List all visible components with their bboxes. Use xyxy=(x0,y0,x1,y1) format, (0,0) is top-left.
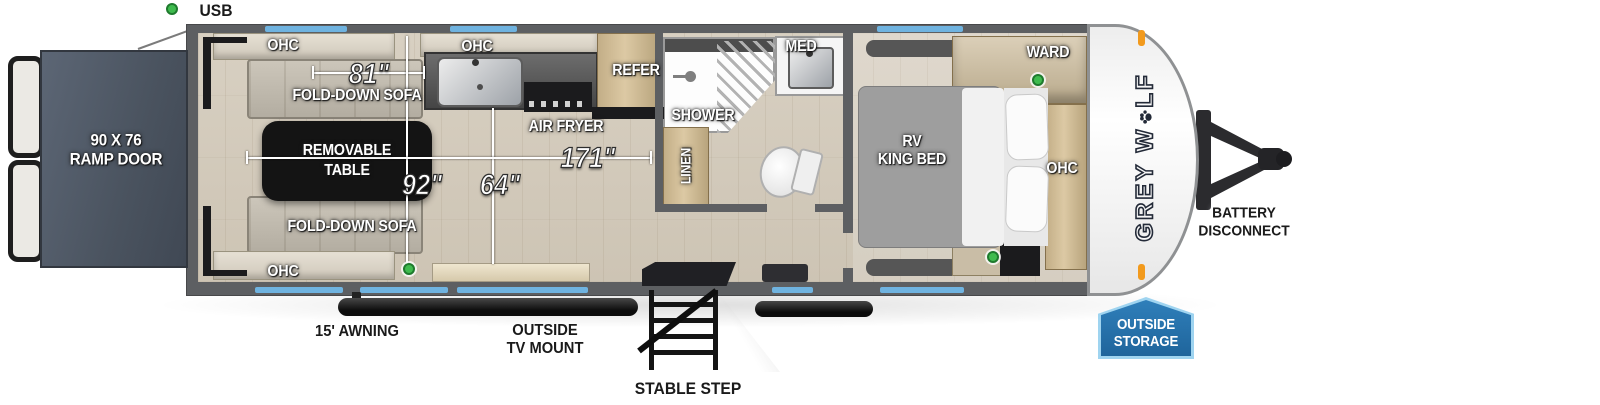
bath-wall xyxy=(655,204,767,212)
shower-arm-icon xyxy=(673,75,687,78)
usb-legend-icon xyxy=(166,3,178,15)
floorplan-diagram: USB 90 X 76 RAMP DOOR OHC FOLD-DOWN SOFA… xyxy=(0,0,1600,405)
dim-tick xyxy=(246,151,248,164)
paw-icon xyxy=(1133,110,1161,125)
table-label-line2: TABLE xyxy=(324,162,370,180)
refer-label: REFER xyxy=(612,62,659,80)
wall-frame xyxy=(203,37,247,43)
med-label: MED xyxy=(785,38,816,56)
dim-92: 92" xyxy=(402,170,442,203)
wall-frame xyxy=(203,37,211,109)
range-knobs xyxy=(529,101,587,107)
fold-out-panel xyxy=(8,56,44,158)
air-fryer-label: AIR FRYER xyxy=(529,118,604,136)
range-air-fryer xyxy=(524,82,592,112)
bed-label-line1: RV xyxy=(902,133,921,151)
window-strip xyxy=(265,26,347,32)
door-hardware xyxy=(762,264,808,282)
ramp-door-label-line1: 90 X 76 xyxy=(90,132,141,151)
dim-171: 171" xyxy=(561,143,616,176)
dim-tick xyxy=(423,66,425,79)
window-strip xyxy=(880,287,964,293)
storage-label-line1: OUTSIDE xyxy=(1117,317,1175,333)
stable-step-label: STABLE STEP xyxy=(635,379,742,399)
shower-label: SHOWER xyxy=(671,107,734,125)
awning-label: 15' AWNING xyxy=(315,323,399,341)
window-bolster-top xyxy=(866,40,964,57)
window-strip xyxy=(772,287,813,293)
ohc-bedroom-label: OHC xyxy=(1046,160,1077,178)
stable-step xyxy=(645,290,723,374)
awning-tube xyxy=(338,298,638,316)
dim-tick xyxy=(650,151,652,164)
window-strip xyxy=(877,26,963,32)
bench xyxy=(432,263,590,282)
ohc-top-left-label: OHC xyxy=(267,37,298,55)
sofa-bottom-label: FOLD-DOWN SOFA xyxy=(288,218,417,236)
battery-label-line1: BATTERY xyxy=(1212,205,1276,222)
window-bolster-bottom xyxy=(866,259,964,276)
window-strip xyxy=(457,287,588,293)
bedroom-wall xyxy=(843,268,853,282)
brand-text-post: LF xyxy=(1132,72,1159,107)
usb-legend-label: USB xyxy=(199,1,232,21)
ramp-door-label-line2: RAMP DOOR xyxy=(70,151,163,170)
bed-label-line2: KING BED xyxy=(878,151,946,169)
awning-tube-front xyxy=(755,301,873,317)
bath-wall xyxy=(655,33,663,212)
storage-label-line2: STORAGE xyxy=(1114,334,1178,350)
ohc-bottom-left-label: OHC xyxy=(267,263,298,281)
sink-drain xyxy=(477,84,483,90)
faucet-icon xyxy=(472,59,479,66)
tongue-hitch xyxy=(1196,98,1292,222)
step-rung xyxy=(649,350,718,355)
entry-step xyxy=(642,262,736,286)
ward-label: WARD xyxy=(1027,44,1070,62)
table-label-line1: REMOVABLE xyxy=(303,142,391,160)
window-strip xyxy=(450,26,517,32)
brand-text-pre: GREY W xyxy=(1132,127,1159,242)
fold-out-panel xyxy=(8,160,44,262)
overhead-cabinet-bedroom xyxy=(1045,104,1087,270)
wall-frame xyxy=(203,206,211,276)
battery-label-line2: DISCONNECT xyxy=(1198,223,1289,240)
tv-mount-label-line2: TV MOUNT xyxy=(507,340,584,358)
wall-frame xyxy=(203,270,247,276)
bed-duvet xyxy=(962,88,1004,246)
dim-64: 64" xyxy=(480,170,520,203)
step-rung xyxy=(649,302,718,307)
usb-port xyxy=(987,251,999,263)
kitchen-sink xyxy=(437,57,523,107)
window-strip xyxy=(255,287,343,293)
usb-port xyxy=(1032,74,1044,86)
ohc-kitchen-label: OHC xyxy=(461,38,492,56)
dim-81: 81" xyxy=(349,59,389,92)
brand-logo: GREY W LF xyxy=(1132,72,1161,241)
usb-port xyxy=(403,263,415,275)
window-strip xyxy=(360,287,448,293)
tv-mount-label-line1: OUTSIDE xyxy=(512,322,577,340)
marker-light xyxy=(1138,264,1145,280)
linen-label: LINEN xyxy=(679,148,694,184)
pillow xyxy=(1005,93,1049,160)
bedroom-wall xyxy=(843,33,853,233)
pillow xyxy=(1005,165,1049,232)
dim-tick xyxy=(312,66,314,79)
marker-light xyxy=(1138,30,1145,46)
